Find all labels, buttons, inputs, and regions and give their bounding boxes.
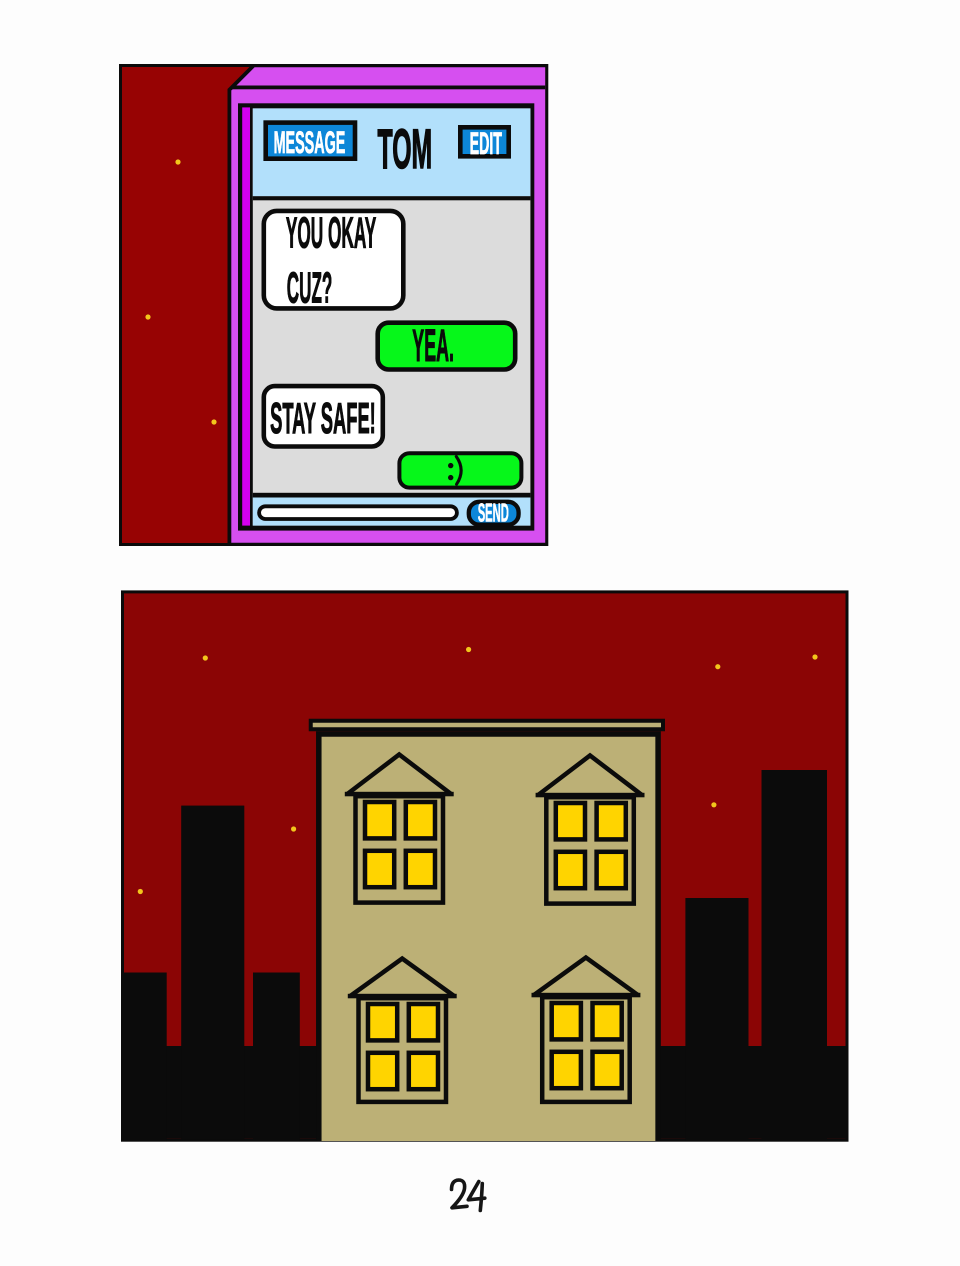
svg-text:YEA.: YEA. bbox=[412, 320, 454, 371]
svg-text:YOU OKAY: YOU OKAY bbox=[286, 208, 376, 257]
svg-text:STAY SAFE!: STAY SAFE! bbox=[270, 394, 376, 443]
svg-text:CUZ?: CUZ? bbox=[287, 263, 333, 312]
svg-text:EDIT: EDIT bbox=[470, 125, 502, 161]
svg-text:TOM: TOM bbox=[378, 117, 433, 180]
svg-text:MESSAGE: MESSAGE bbox=[274, 124, 346, 160]
svg-text:SEND: SEND bbox=[478, 499, 509, 527]
